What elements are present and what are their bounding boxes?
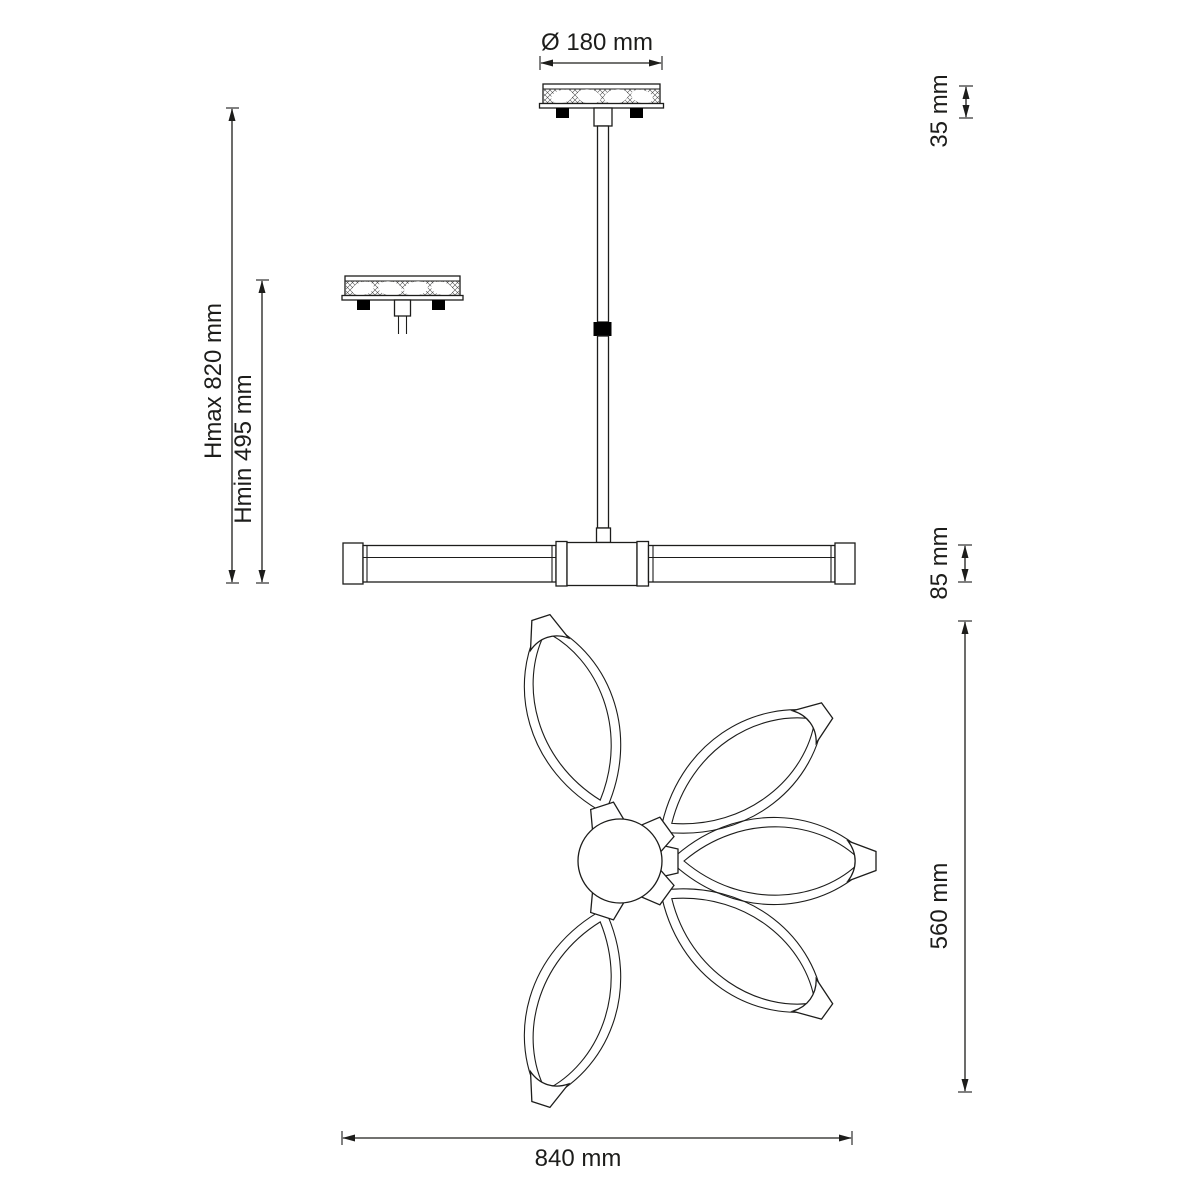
body-end-cap-right: [835, 543, 855, 584]
body-tube-right: [649, 546, 836, 583]
canopy-foot-left: [556, 108, 569, 118]
canopy-detail-foot-right: [432, 300, 445, 310]
rod-upper-tube: [598, 126, 609, 322]
body-center-clamp-left: [556, 542, 567, 587]
dimension-drawing: Ø 180 mm 35 mm: [0, 0, 1200, 1200]
body-center-box: [567, 543, 637, 586]
dimension-drawing-page: Ø 180 mm 35 mm: [0, 0, 1200, 1200]
petal-inner-tube: [684, 827, 861, 895]
canopy-detail-view: [342, 276, 463, 334]
rod-bottom-collar: [597, 528, 611, 543]
canopy-foot-right: [630, 108, 643, 118]
hmax-label: Hmax 820 mm: [200, 303, 227, 459]
bottom-width-dimension: 840 mm: [342, 1131, 852, 1172]
rod-top-collar: [594, 108, 612, 126]
body-end-cap-left: [343, 543, 363, 584]
lamp-body-side-view: [343, 542, 855, 587]
body-height-dimension: 85 mm: [926, 526, 972, 599]
canopy-height-dimension: 35 mm: [926, 74, 973, 147]
body-height-label: 85 mm: [926, 526, 953, 599]
center-hub: [578, 819, 662, 903]
hmin-label: Hmin 495 mm: [230, 374, 257, 523]
canopy-height-label: 35 mm: [926, 74, 953, 147]
bottom-depth-label: 560 mm: [926, 863, 953, 950]
flower-petal: [656, 817, 876, 904]
hmin-dimension: Hmin 495 mm: [230, 280, 269, 583]
fixture-bottom-view: [499, 604, 876, 1118]
petal-tip-cap: [848, 841, 876, 881]
canopy-detail-foot-left: [357, 300, 370, 310]
petal-outer-tube: [670, 817, 872, 904]
rod-height-adjuster: [594, 322, 612, 336]
canopy-detail-base-plate: [342, 296, 463, 301]
canopy-base-plate: [540, 104, 664, 109]
body-tube-left: [363, 546, 556, 583]
body-center-clamp-right: [637, 542, 649, 587]
rod-lower-tube: [598, 336, 609, 528]
bottom-width-label: 840 mm: [535, 1145, 622, 1172]
canopy-detail-rod-collar: [395, 300, 411, 316]
canopy-diameter-dimension: Ø 180 mm: [540, 29, 662, 70]
suspension-rod: [594, 108, 613, 543]
bottom-depth-dimension: 560 mm: [926, 621, 972, 1092]
canopy-diameter-label: Ø 180 mm: [541, 29, 653, 56]
